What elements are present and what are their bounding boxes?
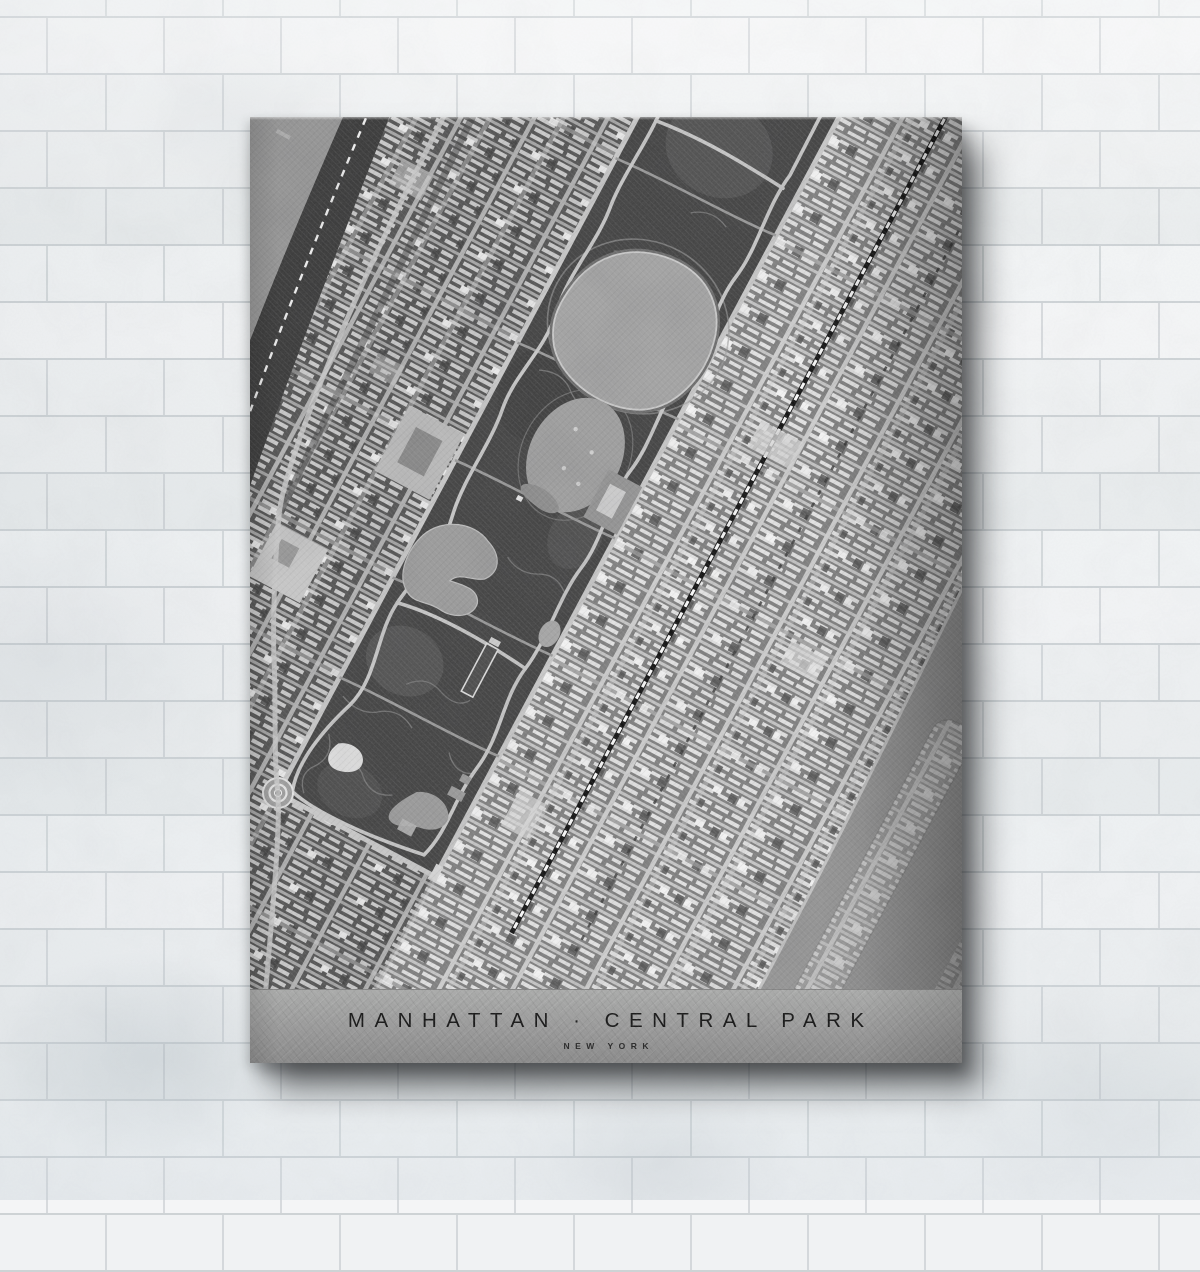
brick <box>48 246 165 301</box>
brick <box>107 1215 224 1270</box>
brick <box>1160 417 1200 472</box>
brick <box>692 1215 809 1270</box>
brick <box>1043 531 1160 586</box>
brick <box>1160 0 1200 16</box>
brick <box>0 873 107 928</box>
brick <box>984 360 1101 415</box>
brick <box>48 588 165 643</box>
brick <box>1160 75 1200 130</box>
brick <box>1101 816 1200 871</box>
brick <box>165 18 282 73</box>
brick <box>1160 1215 1200 1270</box>
brick <box>984 588 1101 643</box>
brick <box>1043 645 1160 700</box>
brick <box>107 1101 224 1156</box>
brick <box>984 1044 1101 1099</box>
brick <box>1101 588 1200 643</box>
brick <box>984 1158 1101 1213</box>
brick <box>165 1158 282 1213</box>
brick <box>458 1215 575 1270</box>
brick <box>809 1101 926 1156</box>
brick <box>516 1158 633 1213</box>
brick <box>1160 303 1200 358</box>
brick <box>926 1215 1043 1270</box>
brick <box>48 816 165 871</box>
brick <box>1101 474 1200 529</box>
brick <box>48 930 165 985</box>
brick <box>1043 1101 1160 1156</box>
brick <box>458 1101 575 1156</box>
brick <box>48 1158 165 1213</box>
brick <box>984 816 1101 871</box>
brick <box>750 18 867 73</box>
brick <box>1043 0 1160 16</box>
brick <box>0 645 107 700</box>
brick <box>0 189 107 244</box>
brick <box>0 417 107 472</box>
brick <box>0 1215 107 1270</box>
brick <box>399 18 516 73</box>
brick <box>750 1158 867 1213</box>
brick-row <box>0 1215 1200 1272</box>
brick <box>1101 702 1200 757</box>
brick <box>0 18 48 73</box>
brick <box>282 18 399 73</box>
brick <box>341 1101 458 1156</box>
brick <box>867 18 984 73</box>
central-park-map <box>250 117 962 1063</box>
brick <box>107 75 224 130</box>
brick <box>282 1158 399 1213</box>
brick-row <box>0 0 1200 18</box>
brick <box>1101 18 1200 73</box>
brick <box>984 18 1101 73</box>
brick <box>0 816 48 871</box>
brick <box>107 531 224 586</box>
brick <box>0 132 48 187</box>
brick <box>984 702 1101 757</box>
brick <box>1043 1215 1160 1270</box>
brick <box>48 132 165 187</box>
brick <box>984 930 1101 985</box>
brick <box>458 0 575 16</box>
brick <box>48 1044 165 1099</box>
brick <box>341 1215 458 1270</box>
brick <box>0 246 48 301</box>
brick <box>984 246 1101 301</box>
brick <box>1101 1158 1200 1213</box>
brick <box>107 303 224 358</box>
brick <box>48 360 165 415</box>
brick <box>399 1158 516 1213</box>
brick <box>809 0 926 16</box>
right-edge-shading <box>250 117 962 1063</box>
brick <box>107 645 224 700</box>
brick-row <box>0 18 1200 75</box>
brick <box>341 0 458 16</box>
brick <box>0 987 107 1042</box>
brick <box>0 474 48 529</box>
brick <box>107 759 224 814</box>
brick <box>575 0 692 16</box>
brick <box>107 189 224 244</box>
brick <box>1160 1101 1200 1156</box>
brick <box>809 1215 926 1270</box>
brick <box>1043 987 1160 1042</box>
brick <box>107 417 224 472</box>
brick <box>1101 132 1200 187</box>
brick <box>692 0 809 16</box>
brick <box>0 930 48 985</box>
brick <box>633 1158 750 1213</box>
brick <box>692 1101 809 1156</box>
brick <box>0 1044 48 1099</box>
brick <box>1101 1044 1200 1099</box>
brick <box>1043 417 1160 472</box>
brick <box>48 18 165 73</box>
brick <box>575 1101 692 1156</box>
brick <box>1043 189 1160 244</box>
brick <box>516 18 633 73</box>
brick <box>0 759 107 814</box>
brick <box>224 1101 341 1156</box>
brick <box>1160 189 1200 244</box>
brick <box>633 18 750 73</box>
poster-subtitle: NEW YORK <box>250 1041 962 1051</box>
brick <box>1160 873 1200 928</box>
brick <box>224 1215 341 1270</box>
brick <box>0 588 48 643</box>
brick <box>0 360 48 415</box>
brick <box>1043 873 1160 928</box>
brick <box>1101 360 1200 415</box>
brick <box>926 1101 1043 1156</box>
brick <box>575 1215 692 1270</box>
brick <box>48 702 165 757</box>
brick-row <box>0 1101 1200 1158</box>
brick <box>1043 303 1160 358</box>
brick <box>0 75 107 130</box>
brick <box>107 987 224 1042</box>
brick <box>1160 645 1200 700</box>
brick <box>984 474 1101 529</box>
brick <box>0 531 107 586</box>
brick <box>107 873 224 928</box>
brick <box>1160 759 1200 814</box>
brick <box>1101 930 1200 985</box>
brick <box>1160 531 1200 586</box>
title-band: MANHATTAN · CENTRAL PARK NEW YORK <box>250 989 962 1063</box>
brick <box>107 0 224 16</box>
brick <box>0 1101 107 1156</box>
brick-row <box>0 1158 1200 1215</box>
brick <box>1101 246 1200 301</box>
brick <box>0 303 107 358</box>
brick <box>0 1158 48 1213</box>
brick <box>926 0 1043 16</box>
brick <box>48 474 165 529</box>
brick <box>224 0 341 16</box>
poster-title: MANHATTAN · CENTRAL PARK <box>250 1009 962 1033</box>
brick <box>1043 75 1160 130</box>
brick <box>1043 759 1160 814</box>
brick <box>867 1158 984 1213</box>
brick <box>0 702 48 757</box>
brick <box>1160 987 1200 1042</box>
poster-canvas: MANHATTAN · CENTRAL PARK NEW YORK <box>250 117 962 1063</box>
brick <box>0 0 107 16</box>
brick <box>984 132 1101 187</box>
